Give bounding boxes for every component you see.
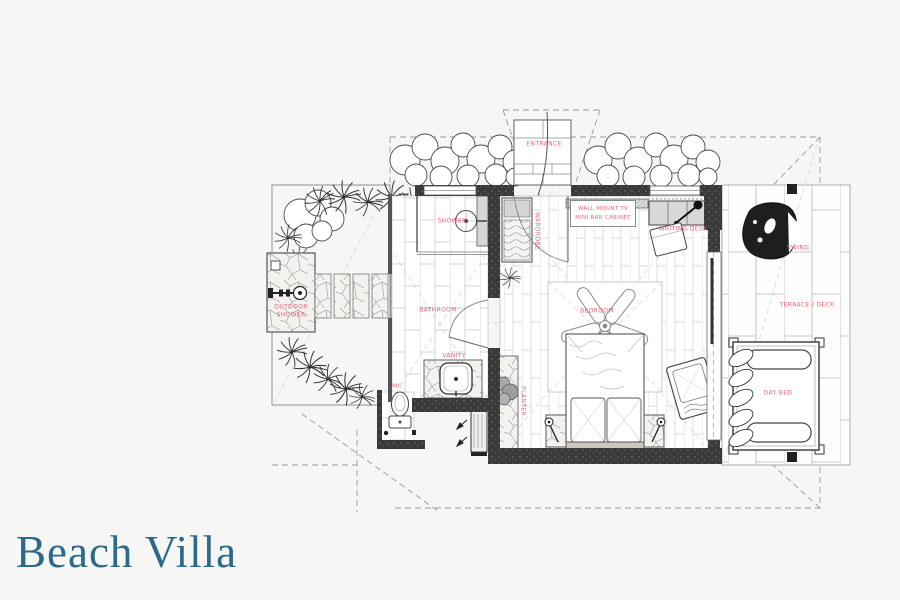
label-shower: SHOWER <box>437 218 466 225</box>
pillow <box>607 398 641 442</box>
bed <box>566 334 644 452</box>
label-vanity: VANITY <box>442 353 466 360</box>
vanity <box>424 360 482 398</box>
label-bedroom: BEDROOM <box>580 308 614 315</box>
nightstand-left <box>545 415 566 447</box>
label-mini-bar-cabinet: MINI BAR CABINET <box>575 215 631 221</box>
hedge-left <box>390 133 527 188</box>
floor-plan-drawing <box>0 0 900 600</box>
label-entrance: ENTRANCE <box>526 141 561 148</box>
label-wardrobe: WARDROBE <box>534 212 541 250</box>
label-planter: PLANTER <box>520 386 527 416</box>
window-bathroom <box>424 186 476 195</box>
entrance-path <box>514 120 571 185</box>
wardrobe <box>502 198 532 262</box>
label-swing: SWING <box>787 245 809 252</box>
label-outdoor-shower-2: SHOWER <box>276 312 305 319</box>
pillow <box>571 398 605 442</box>
label-terrace: TERRACE / DECK <box>780 302 835 309</box>
ac-airflow-arrows <box>457 420 467 446</box>
sliding-door <box>707 252 721 440</box>
label-wall-mount-tv: WALL MOUNT TV <box>578 206 628 212</box>
window-desk <box>650 186 700 195</box>
page-title: Beach Villa <box>16 526 237 578</box>
label-bathroom: BATHROOM <box>419 307 457 314</box>
label-outdoor-shower-1: OUTDOOR <box>274 304 307 311</box>
label-wc: WC <box>392 384 402 391</box>
label-day-bed: DAY BED <box>764 390 793 397</box>
nightstand-right <box>644 415 665 447</box>
outdoor-shower <box>267 253 315 332</box>
tv-label-box: WALL MOUNT TV MINI BAR CABINET <box>570 200 636 227</box>
canvas: ENTRANCE SHOWER WARDROBE WALL MOUNT TV M… <box>0 0 900 600</box>
ac-unit <box>471 406 487 456</box>
hedge-right <box>584 133 720 188</box>
label-writing-desk: WRITING DESK <box>659 226 708 233</box>
